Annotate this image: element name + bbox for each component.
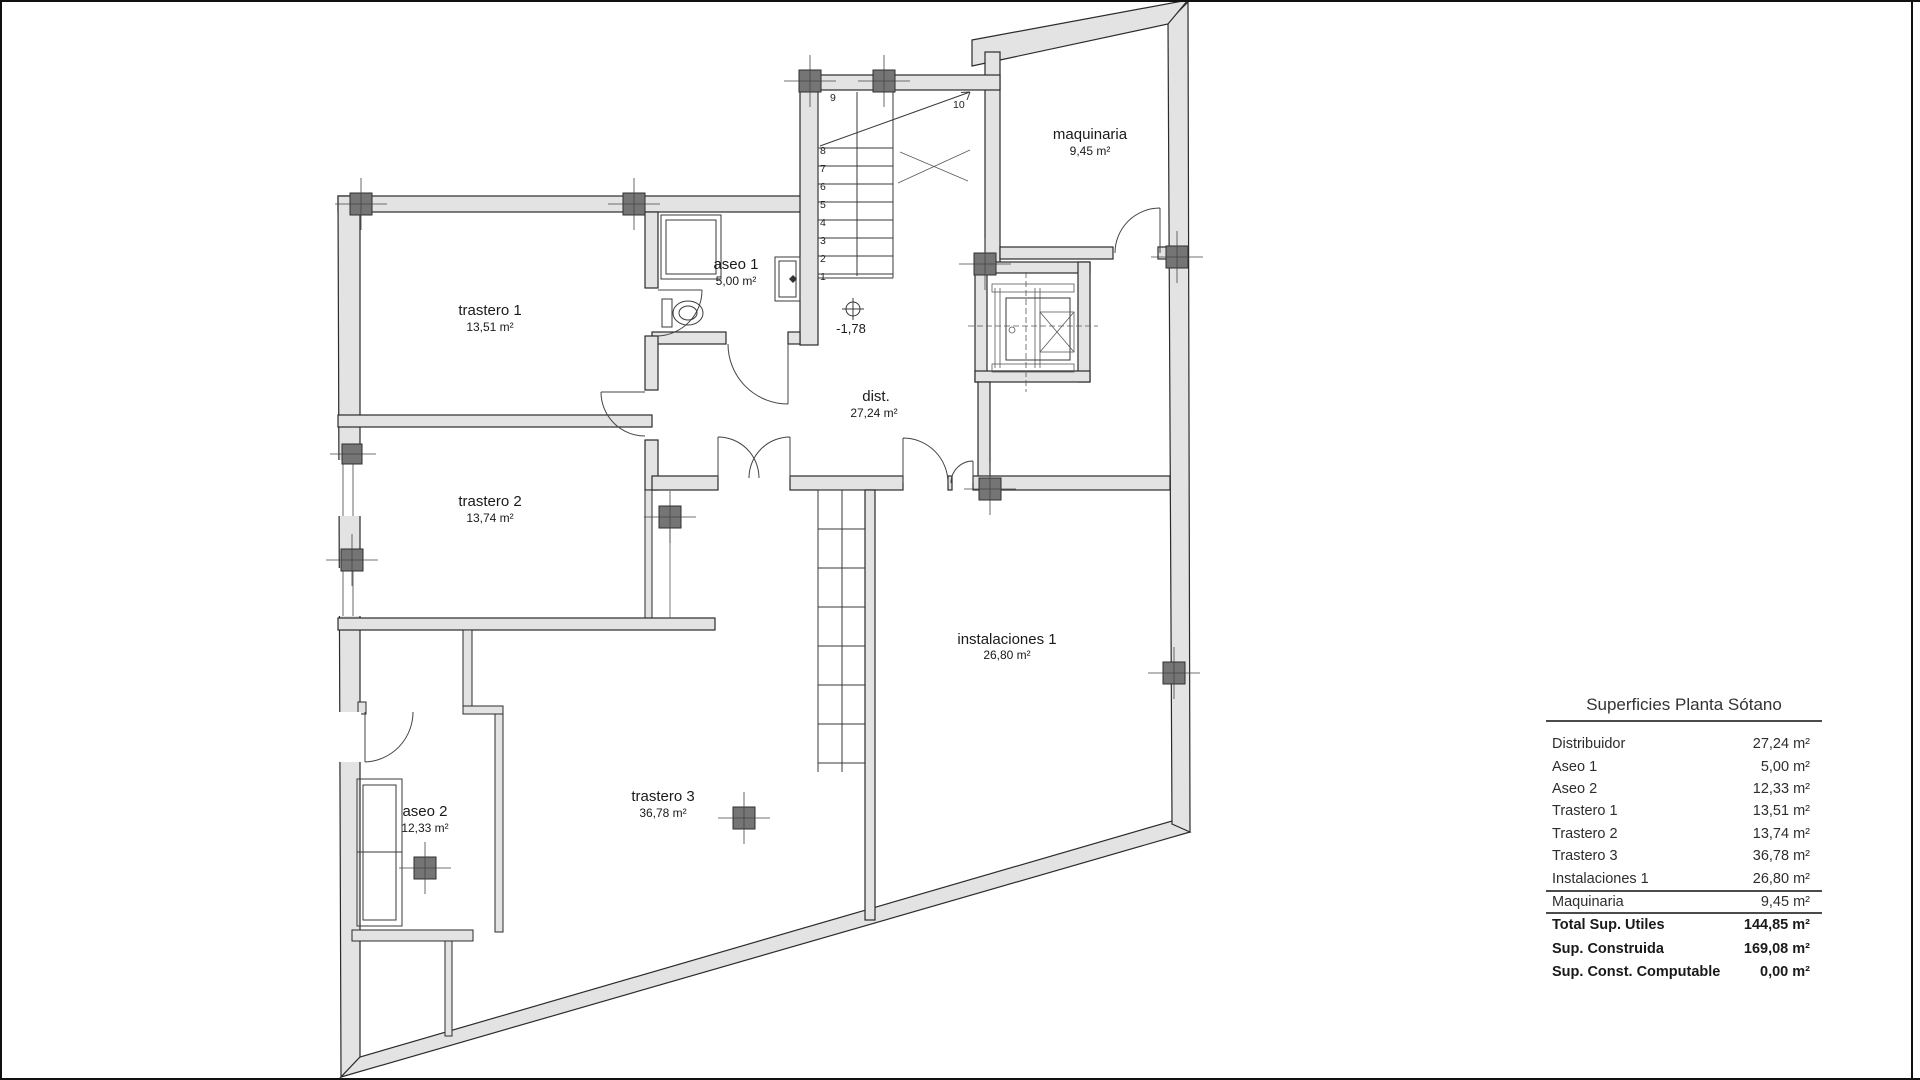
level-marker: -1,78 — [836, 298, 866, 336]
row-value: 13,51 m² — [1753, 803, 1810, 819]
row-label: Trastero 3 — [1552, 848, 1618, 864]
frame-left — [0, 0, 2, 1080]
outer-walls — [338, 0, 1190, 1077]
row-label: Sup. Construida — [1552, 941, 1664, 957]
table-row: Trastero 3 36,78 m² — [1546, 845, 1822, 867]
columns — [326, 55, 1203, 894]
column — [858, 55, 910, 107]
row-value: 27,24 m² — [1753, 736, 1810, 752]
row-label: Distribuidor — [1552, 736, 1625, 752]
svg-text:5,00 m²: 5,00 m² — [716, 274, 757, 288]
stair-number: 3 — [820, 235, 826, 247]
stair-number: 9 — [830, 92, 836, 104]
svg-text:13,51 m²: 13,51 m² — [466, 320, 513, 334]
table-row: Trastero 1 13,51 m² — [1546, 800, 1822, 822]
door-double-trastero3 — [718, 437, 790, 478]
row-value: 169,08 m² — [1744, 941, 1810, 957]
room-label-aseo2: aseo 2 12,33 m² — [401, 803, 448, 835]
frame-top — [0, 0, 1920, 2]
row-value: 9,45 m² — [1761, 894, 1810, 910]
left-wall-openings — [337, 460, 361, 762]
door-maquinaria — [1115, 208, 1160, 253]
table-row-total: Sup. Const. Computable 0,00 m² — [1546, 961, 1822, 985]
door-aseo1 — [728, 344, 788, 404]
row-label: Maquinaria — [1552, 894, 1624, 910]
room-label-distribuidor: dist. 27,24 m² — [850, 388, 897, 420]
table-row: Instalaciones 1 26,80 m² — [1546, 867, 1822, 889]
summary-title-rule — [1546, 720, 1822, 722]
row-label: Trastero 2 — [1552, 826, 1618, 842]
room-label-trastero1: trastero 1 13,51 m² — [458, 302, 521, 334]
room-label-aseo1: aseo 1 5,00 m² — [713, 256, 758, 288]
stair-number: 2 — [820, 253, 826, 265]
stair-numbers: 1 2 3 4 5 6 7 8 9 10 — [820, 92, 965, 283]
summary-table: Superficies Planta Sótano Distribuidor 2… — [1546, 694, 1822, 984]
row-label: Aseo 1 — [1552, 759, 1597, 775]
frame-right — [1911, 0, 1913, 1080]
svg-text:trastero 3: trastero 3 — [631, 788, 694, 805]
stair-number: 5 — [820, 199, 826, 211]
door-trastero2 — [601, 392, 645, 436]
svg-text:trastero 1: trastero 1 — [458, 302, 521, 319]
table-row: Maquinaria 9,45 m² — [1546, 890, 1822, 914]
row-value: 12,33 m² — [1753, 781, 1810, 797]
row-value: 26,80 m² — [1753, 871, 1810, 887]
svg-text:maquinaria: maquinaria — [1053, 126, 1128, 143]
level-marker-value: -1,78 — [836, 321, 866, 336]
stair-number: 8 — [820, 145, 826, 157]
row-value: 36,78 m² — [1753, 848, 1810, 864]
stair-number: 4 — [820, 217, 826, 229]
column — [326, 534, 378, 586]
svg-text:13,74 m²: 13,74 m² — [466, 511, 513, 525]
svg-text:26,80 m²: 26,80 m² — [983, 648, 1030, 662]
floor-plan-page: -1,78 1 2 3 4 5 6 7 8 9 10 trastero 1 13… — [0, 0, 1920, 1080]
room-label-instalaciones1: instalaciones 1 26,80 m² — [957, 631, 1056, 662]
shower-aseo2 — [357, 779, 402, 926]
toilet-aseo1 — [662, 299, 703, 327]
svg-text:trastero 2: trastero 2 — [458, 493, 521, 510]
table-row-total: Total Sup. Utiles 144,85 m² — [1546, 914, 1822, 938]
table-row: Aseo 2 12,33 m² — [1546, 778, 1822, 800]
row-value: 144,85 m² — [1744, 917, 1810, 933]
table-row-total: Sup. Construida 169,08 m² — [1546, 937, 1822, 961]
row-value: 0,00 m² — [1760, 964, 1810, 980]
row-label: Total Sup. Utiles — [1552, 917, 1665, 933]
table-row: Trastero 2 13,74 m² — [1546, 823, 1822, 845]
summary-table-rows: Distribuidor 27,24 m² Aseo 1 5,00 m² Ase… — [1546, 733, 1822, 984]
column — [784, 55, 836, 107]
stair-number: 10 — [953, 99, 965, 111]
table-row: Distribuidor 27,24 m² — [1546, 733, 1822, 755]
row-label: Instalaciones 1 — [1552, 871, 1649, 887]
stair-number: 1 — [820, 271, 826, 283]
row-value: 13,74 m² — [1753, 826, 1810, 842]
room-label-trastero2: trastero 2 13,74 m² — [458, 493, 521, 525]
row-label: Trastero 1 — [1552, 803, 1618, 819]
interior-walls — [338, 212, 1170, 1036]
staircase — [818, 90, 970, 278]
column — [718, 792, 770, 844]
column — [959, 238, 1011, 290]
row-label: Sup. Const. Computable — [1552, 964, 1720, 980]
stair-lower-flight — [818, 490, 865, 772]
column — [399, 842, 451, 894]
duct-cabinet-aseo1 — [775, 257, 800, 301]
svg-text:36,78 m²: 36,78 m² — [639, 806, 686, 820]
svg-text:aseo 1: aseo 1 — [713, 256, 758, 273]
table-row: Aseo 1 5,00 m² — [1546, 755, 1822, 777]
svg-text:27,24 m²: 27,24 m² — [850, 406, 897, 420]
column — [964, 463, 1016, 515]
row-value: 5,00 m² — [1761, 759, 1810, 775]
svg-text:12,33 m²: 12,33 m² — [401, 821, 448, 835]
column — [1148, 647, 1200, 699]
door-aseo2 — [365, 712, 413, 762]
svg-text:instalaciones 1: instalaciones 1 — [957, 631, 1056, 648]
row-label: Aseo 2 — [1552, 781, 1597, 797]
summary-table-title: Superficies Planta Sótano — [1546, 694, 1822, 716]
stair-number: 6 — [820, 181, 826, 193]
room-label-maquinaria: maquinaria 9,45 m² — [1053, 126, 1128, 158]
svg-text:aseo 2: aseo 2 — [402, 803, 447, 820]
door-trastero1 — [658, 290, 702, 336]
room-label-trastero3: trastero 3 36,78 m² — [631, 788, 694, 820]
column — [330, 444, 376, 464]
stair-number: 7 — [820, 163, 826, 175]
svg-text:dist.: dist. — [862, 388, 890, 405]
door-instalaciones — [903, 438, 973, 483]
column — [1151, 231, 1203, 283]
svg-text:9,45 m²: 9,45 m² — [1070, 144, 1111, 158]
shower-aseo1 — [661, 215, 721, 279]
